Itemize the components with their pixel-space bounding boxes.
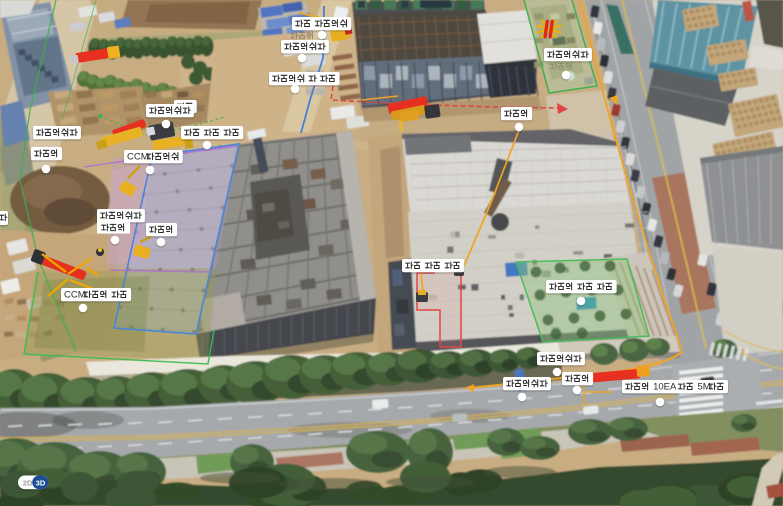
svg-text:3D: 3D [36,478,46,487]
svg-text:5M: 5M [698,382,711,393]
svg-text:10EA: 10EA [653,382,677,393]
svg-text:CCM: CCM [127,152,149,163]
svg-text:2D: 2D [23,478,33,487]
svg-text:CCM: CCM [64,290,86,301]
